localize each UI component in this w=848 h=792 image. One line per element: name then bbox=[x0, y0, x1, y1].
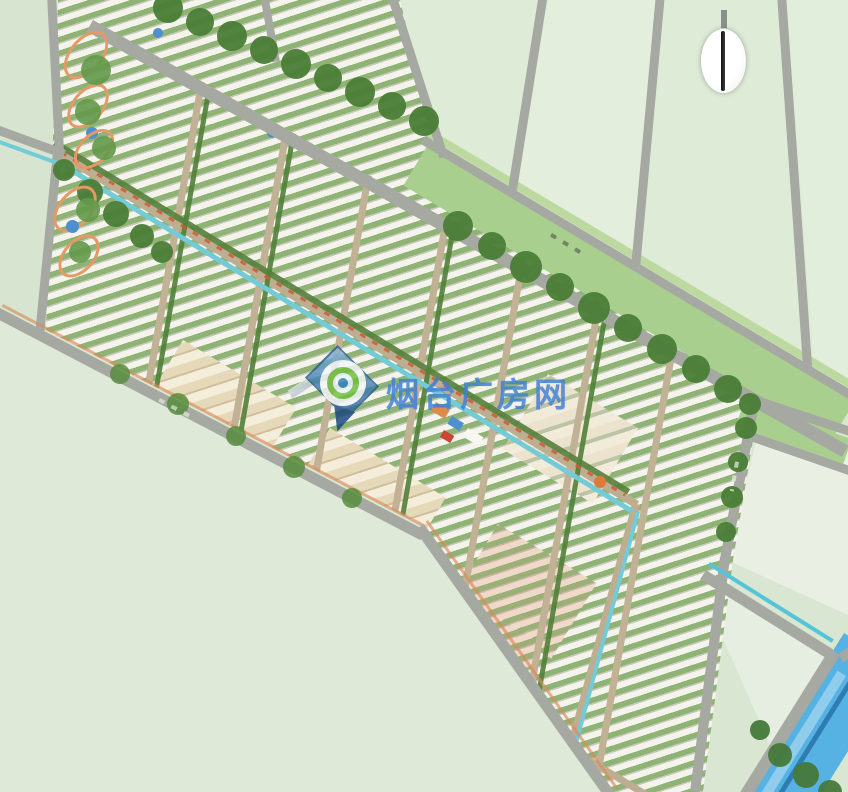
watermark-pin-tip-icon bbox=[327, 405, 355, 435]
compass-north-arrow bbox=[698, 8, 750, 98]
road-label-smudge bbox=[550, 233, 585, 256]
watermark: 烟台广房网 bbox=[292, 342, 592, 442]
master-plan-map-canvas: 烟台广房网 bbox=[0, 0, 848, 792]
watermark-magnifier-diamond-icon bbox=[292, 342, 384, 442]
road-label-smudge bbox=[730, 461, 739, 491]
watermark-lens-center bbox=[338, 378, 348, 388]
watermark-text: 烟台广房网 bbox=[386, 368, 571, 416]
compass-needle-icon bbox=[721, 31, 725, 91]
road-label-smudge bbox=[158, 398, 190, 417]
overlay-layer: 烟台广房网 bbox=[0, 0, 848, 792]
